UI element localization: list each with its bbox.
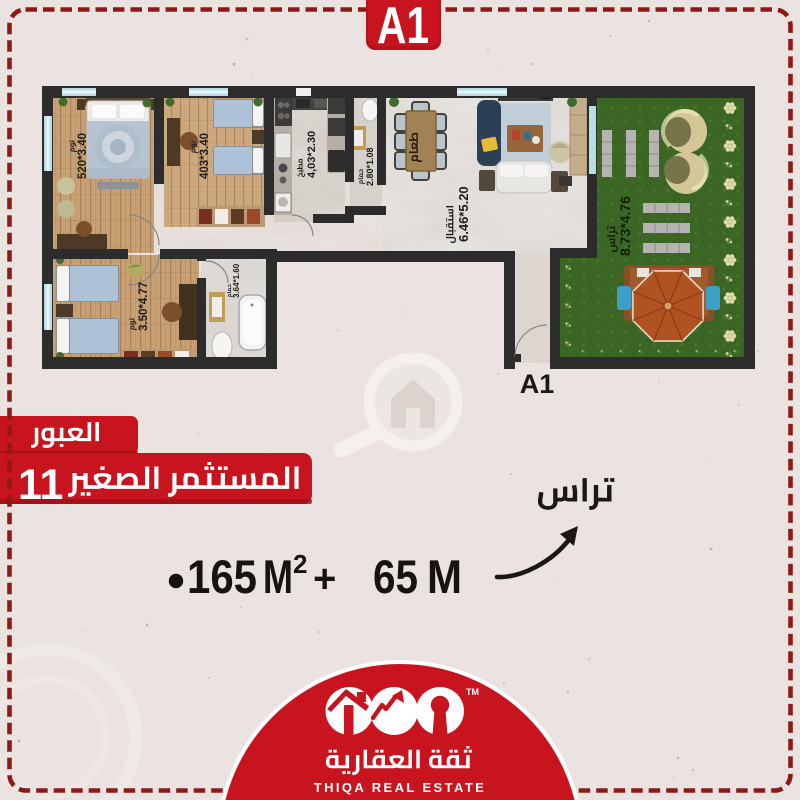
svg-text:11: 11 xyxy=(18,461,63,509)
svg-text:M: M xyxy=(427,550,462,603)
svg-text:M: M xyxy=(263,550,293,603)
svg-text:TM: TM xyxy=(466,687,479,697)
svg-text:A1: A1 xyxy=(377,0,429,55)
svg-text:65: 65 xyxy=(373,550,418,603)
svg-text:A1: A1 xyxy=(520,369,555,399)
svg-text:3.50*4.77: 3.50*4.77 xyxy=(138,282,150,331)
svg-text:2: 2 xyxy=(293,549,307,579)
svg-text:6.46*5.20: 6.46*5.20 xyxy=(456,186,471,242)
svg-text:4,03*2.30: 4,03*2.30 xyxy=(306,131,318,178)
svg-text:165: 165 xyxy=(187,550,257,603)
svg-text:+: + xyxy=(313,557,336,601)
svg-text:3.64*1.60: 3.64*1.60 xyxy=(232,263,241,298)
svg-text:THIQA REAL ESTATE: THIQA REAL ESTATE xyxy=(314,780,487,795)
svg-text:8.73*4.76: 8.73*4.76 xyxy=(617,196,633,256)
svg-text:403*3.40: 403*3.40 xyxy=(199,133,211,179)
svg-text:520*3.40: 520*3.40 xyxy=(77,133,89,179)
svg-text:2.80*1.08: 2.80*1.08 xyxy=(365,147,375,186)
